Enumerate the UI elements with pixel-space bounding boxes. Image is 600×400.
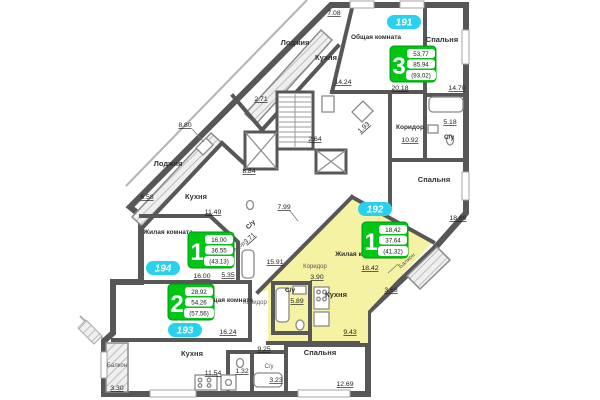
room-label-living: Жилая комната: [142, 229, 193, 236]
room-label-bathroom: С/у: [285, 287, 296, 294]
room-label-corridor: Коридор: [243, 300, 267, 306]
dimension-label: 7.99: [277, 204, 290, 211]
area-info-box-193[interactable]: 2 28,92 54,26 (57,56): [168, 284, 214, 320]
dimension-label: 10.92: [401, 137, 418, 144]
room-count: 3: [392, 53, 405, 80]
elevator-shaft-icon: [245, 132, 277, 169]
room-count: 2: [170, 291, 183, 318]
room-label-kitchen: Кухня: [315, 53, 337, 62]
room-label-balcony: Балкон: [107, 363, 127, 369]
dimension-label: 3.68: [384, 287, 397, 294]
area-value: 54,26: [191, 300, 207, 307]
area-info-box-194[interactable]: 1 16,00 36,55 (43,13): [188, 232, 234, 268]
area-value: (57,56): [189, 311, 209, 318]
dimension-label: 5.35: [221, 272, 234, 279]
dimension-label: 14.24: [334, 79, 351, 86]
area-value: 36,55: [211, 248, 227, 255]
room-label-loggia: Лоджия: [154, 159, 183, 168]
dimension-label: 9.43: [343, 329, 356, 336]
dimension-label: 8.84: [242, 168, 255, 175]
apartment-number: 192: [367, 205, 384, 216]
area-value: (41,32): [383, 249, 403, 256]
dimension-label: 3.23: [269, 377, 282, 384]
apartment-badge-191[interactable]: 191: [387, 15, 421, 29]
room-count: 1: [364, 229, 377, 256]
dimension-label: 2.71: [254, 96, 267, 103]
dimension-label: 18.89: [449, 215, 466, 222]
dimension-label: 15.91: [266, 259, 283, 266]
room-label-corridor: Коридор: [396, 124, 424, 131]
dimension-label: 18.42: [361, 265, 378, 272]
floor-plan-screenshot: Лоджия 7.08 Кухня 14.24 Общая комната 20…: [0, 0, 600, 400]
room-label-kitchen: Кухня: [325, 290, 347, 299]
area-value: 53,77: [413, 51, 429, 58]
dimension-label: 16.24: [219, 329, 236, 336]
room-label-corridor: Коридор: [303, 264, 327, 270]
room-label-kitchen: Кухня: [181, 349, 203, 358]
apartment-number: 194: [155, 264, 172, 275]
room-label-bedroom: Спальня: [304, 348, 336, 357]
apartment-number: 191: [396, 18, 413, 29]
room-label-bedroom: Спальня: [426, 35, 458, 44]
apartment-number: 193: [177, 326, 194, 337]
elevator-shaft-icon: [316, 150, 346, 173]
dimension-label: 2.64: [308, 136, 321, 143]
dimension-label: 3.90: [310, 274, 323, 281]
apartment-badge-194[interactable]: 194: [146, 261, 180, 275]
room-label-kitchen: Кухня: [185, 192, 207, 201]
dimension-label: 12.69: [336, 381, 353, 388]
apartment-badge-192[interactable]: 192: [358, 202, 392, 216]
apartment-badge-193[interactable]: 193: [168, 323, 202, 337]
dimension-label: 5.89: [290, 298, 303, 305]
area-value: 16,00: [211, 237, 227, 244]
floor-plan-svg: Лоджия 7.08 Кухня 14.24 Общая комната 20…: [0, 0, 600, 400]
dimension-label: 9.25: [257, 346, 270, 353]
dimension-label: 11.49: [205, 209, 222, 216]
dimension-label: 11.54: [205, 370, 222, 377]
dimension-label: 3.30: [110, 385, 123, 392]
area-value: 37,64: [385, 238, 401, 245]
room-label-loggia: Лоджия: [281, 38, 310, 47]
room-count: 1: [190, 239, 203, 266]
dimension-label: 14.70: [448, 85, 465, 92]
area-value: (93,02): [411, 73, 431, 80]
dimension-label: 7.08: [327, 10, 340, 17]
dimension-label: 16.00: [193, 273, 210, 280]
dimension-label: 20.18: [391, 85, 408, 92]
room-label-bedroom: Спальня: [418, 175, 450, 184]
dimension-label: 6.58: [140, 194, 153, 201]
room-label-bathroom: С/у: [265, 364, 274, 370]
area-info-box-192[interactable]: 1 18,42 37,64 (41,32): [362, 222, 408, 258]
area-value: (43,13): [209, 259, 229, 266]
room-label-common: Общая комната: [351, 33, 401, 41]
area-value: 18,42: [385, 227, 401, 234]
room-label-bathroom: С/у: [444, 134, 455, 141]
dimension-label: 1.32: [235, 368, 248, 375]
area-value: 28,92: [191, 289, 207, 296]
area-value: 85,94: [413, 62, 429, 69]
dimension-label: 5.18: [443, 119, 456, 126]
dimension-label: 8.80: [178, 122, 191, 129]
area-info-box-191[interactable]: 3 53,77 85,94 (93,02): [390, 46, 436, 82]
